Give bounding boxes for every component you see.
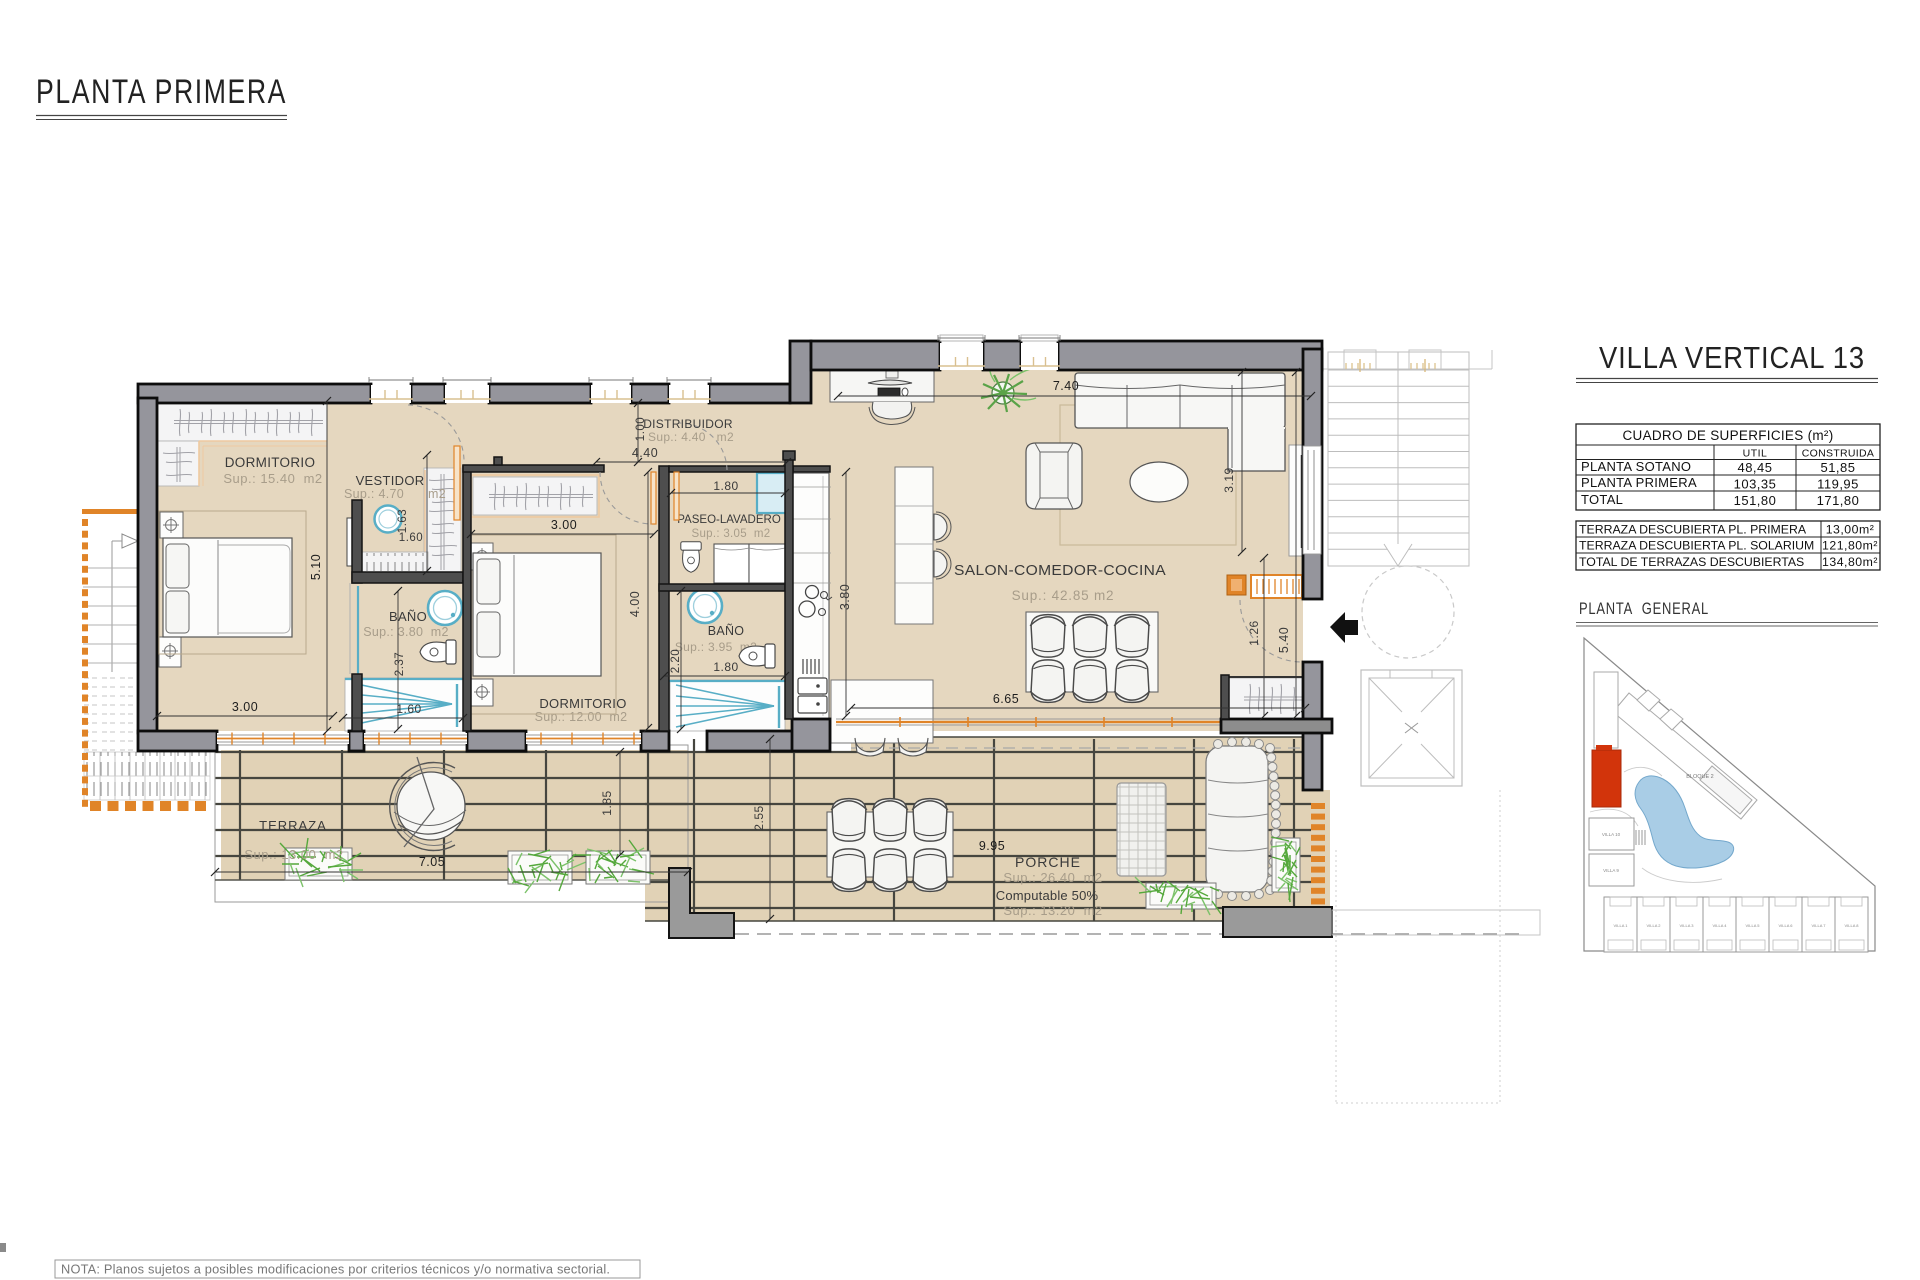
svg-text:VILLA 6: VILLA 6 — [1778, 923, 1793, 928]
svg-text:48,45: 48,45 — [1737, 460, 1772, 475]
svg-text:VILLA 1: VILLA 1 — [1613, 923, 1628, 928]
svg-text:5.40: 5.40 — [1277, 627, 1291, 653]
svg-text:PLANTA GENERAL: PLANTA GENERAL — [1579, 600, 1709, 618]
svg-text:PLANTA PRIMERA: PLANTA PRIMERA — [1581, 475, 1697, 490]
svg-text:TOTAL: TOTAL — [1581, 492, 1623, 507]
svg-text:3.80: 3.80 — [838, 584, 852, 610]
svg-text:PORCHE: PORCHE — [1015, 854, 1081, 870]
svg-text:Sup.: 42.85 m2: Sup.: 42.85 m2 — [1012, 588, 1115, 603]
svg-text:SALON-COMEDOR-COCINA: SALON-COMEDOR-COCINA — [954, 563, 1166, 579]
svg-text:7.40: 7.40 — [1053, 379, 1079, 393]
svg-text:2.55: 2.55 — [752, 805, 766, 830]
svg-text:1.63: 1.63 — [397, 509, 409, 533]
svg-text:VILLA 5: VILLA 5 — [1745, 923, 1760, 928]
svg-text:151,80: 151,80 — [1734, 493, 1777, 508]
svg-text:DISTRIBUIDOR: DISTRIBUIDOR — [643, 417, 733, 431]
svg-text:9.95: 9.95 — [979, 839, 1005, 853]
svg-text:3.00: 3.00 — [551, 518, 577, 532]
svg-text:2.20: 2.20 — [670, 649, 682, 673]
svg-text:51,85: 51,85 — [1820, 460, 1855, 475]
svg-text:13,00m²: 13,00m² — [1826, 523, 1875, 537]
svg-text:2.37: 2.37 — [394, 652, 406, 676]
svg-text:7.05: 7.05 — [419, 855, 445, 869]
svg-text:Sup.: 3.80 m2: Sup.: 3.80 m2 — [363, 625, 449, 639]
svg-text:6.65: 6.65 — [993, 692, 1019, 706]
svg-text:1.80: 1.80 — [713, 660, 738, 674]
svg-text:VILLA VERTICAL 13: VILLA VERTICAL 13 — [1599, 340, 1865, 375]
svg-text:121,80m²: 121,80m² — [1822, 539, 1878, 553]
svg-text:4.40: 4.40 — [632, 446, 658, 460]
svg-text:PASEO-LAVADERO: PASEO-LAVADERO — [677, 514, 781, 526]
svg-text:VILLA 8: VILLA 8 — [1844, 923, 1859, 928]
svg-text:4.00: 4.00 — [628, 591, 642, 617]
svg-text:Sup.: 3.05 m2: Sup.: 3.05 m2 — [692, 528, 771, 540]
svg-text:DORMITORIO: DORMITORIO — [539, 696, 626, 711]
svg-text:PLANTA PRIMERA: PLANTA PRIMERA — [36, 73, 287, 111]
svg-text:VILLA 2: VILLA 2 — [1646, 923, 1661, 928]
svg-text:1.80: 1.80 — [713, 479, 738, 493]
svg-text:1.85: 1.85 — [600, 790, 614, 815]
svg-text:Sup.: 4.40 m2: Sup.: 4.40 m2 — [648, 430, 734, 444]
svg-text:VILLA 4: VILLA 4 — [1712, 923, 1727, 928]
svg-text:BLOQUE 2: BLOQUE 2 — [1686, 774, 1714, 780]
svg-text:VESTIDOR: VESTIDOR — [356, 473, 425, 488]
svg-text:BAÑO: BAÑO — [708, 624, 745, 638]
svg-text:3.19: 3.19 — [1222, 467, 1236, 492]
svg-text:PLANTA SOTANO: PLANTA SOTANO — [1581, 459, 1691, 474]
svg-text:1.26: 1.26 — [1247, 620, 1261, 645]
svg-text:Sup.: 26.40 m2: Sup.: 26.40 m2 — [1003, 870, 1102, 885]
svg-text:Sup.: 15.40 m2: Sup.: 15.40 m2 — [223, 471, 322, 486]
svg-text:m2: m2 — [428, 487, 446, 501]
svg-text:VILLA 10: VILLA 10 — [1602, 832, 1621, 837]
svg-text:CONSTRUIDA: CONSTRUIDA — [1802, 448, 1874, 460]
svg-text:Computable 50%: Computable 50% — [996, 888, 1099, 903]
svg-text:VILLA 3: VILLA 3 — [1679, 923, 1694, 928]
svg-text:Sup.: 13.00 m2: Sup.: 13.00 m2 — [244, 847, 343, 862]
svg-text:DORMITORIO: DORMITORIO — [225, 455, 316, 470]
svg-text:UTIL: UTIL — [1743, 448, 1768, 460]
svg-text:TERRAZA DESCUBIERTA PL. SOLARI: TERRAZA DESCUBIERTA PL. SOLARIUM — [1579, 539, 1814, 553]
svg-text:Sup.: 4.70: Sup.: 4.70 — [344, 487, 404, 501]
svg-text:Sup.: 13.20 m2: Sup.: 13.20 m2 — [1003, 903, 1102, 918]
svg-text:171,80: 171,80 — [1817, 493, 1860, 508]
svg-text:NOTA: Planos sujetos a posible: NOTA: Planos sujetos a posibles modifica… — [61, 1262, 610, 1277]
svg-text:134,80m²: 134,80m² — [1822, 555, 1878, 569]
svg-text:VILLA 7: VILLA 7 — [1811, 923, 1826, 928]
svg-text:BAÑO: BAÑO — [389, 609, 427, 624]
svg-text:TOTAL DE TERRAZAS DESCUBIERTAS: TOTAL DE TERRAZAS DESCUBIERTAS — [1579, 555, 1804, 569]
svg-text:103,35: 103,35 — [1734, 477, 1777, 492]
svg-text:TERRAZA DESCUBIERTA PL. PRIMER: TERRAZA DESCUBIERTA PL. PRIMERA — [1579, 523, 1807, 537]
svg-text:1.60: 1.60 — [396, 702, 421, 716]
svg-text:Sup.: 12.00 m2: Sup.: 12.00 m2 — [535, 710, 628, 724]
svg-text:5.10: 5.10 — [309, 554, 323, 580]
svg-text:VILLA 9: VILLA 9 — [1603, 868, 1619, 873]
svg-text:1.60: 1.60 — [399, 532, 423, 544]
svg-text:3.00: 3.00 — [232, 700, 258, 714]
svg-text:119,95: 119,95 — [1817, 477, 1859, 492]
svg-text:CUADRO DE SUPERFICIES (m²): CUADRO DE SUPERFICIES (m²) — [1622, 428, 1833, 443]
svg-text:TERRAZA: TERRAZA — [259, 818, 327, 833]
